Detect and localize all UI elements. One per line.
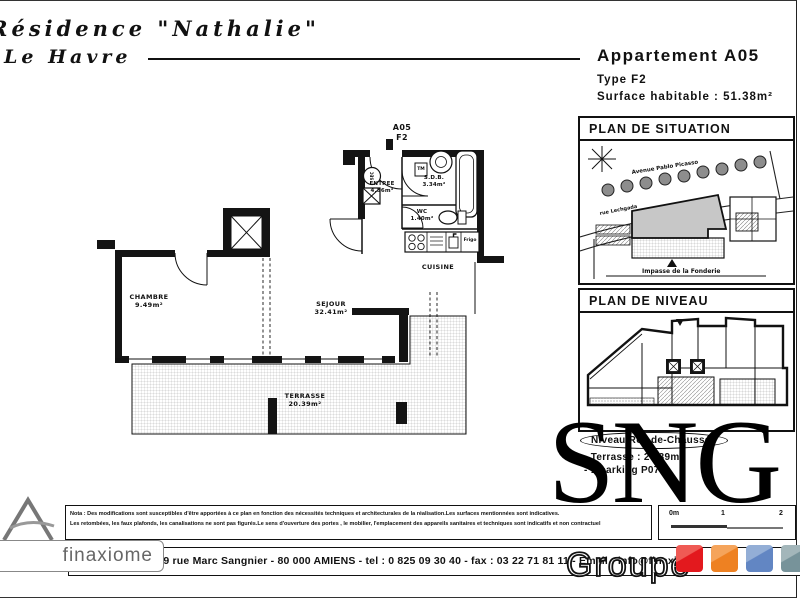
street-impasse-label: Impasse de la Fonderie [642, 268, 720, 275]
toilet [439, 211, 466, 224]
room-label-entree: ENTREE 4.56m² [360, 181, 404, 195]
terrasse-hatch [132, 316, 466, 434]
apartment-type: Type F2 [597, 74, 647, 86]
compass-icon [588, 146, 616, 172]
niveau-panel-title: PLAN DE NIVEAU [580, 290, 793, 313]
situation-map: Avenue Pablo Picasso rue Lechgada Impass… [580, 141, 793, 279]
unit-label-line1: A05 [384, 123, 420, 133]
bathtub [456, 151, 477, 217]
residence-title: Résidence "Nathalie" [0, 16, 320, 41]
sec-label: SEC [370, 172, 375, 181]
apartment-surface: Surface habitable : 51.38m² [597, 91, 773, 103]
brand-square-teal [781, 545, 800, 572]
washer-label: TM [415, 167, 427, 173]
washbasin [430, 151, 452, 173]
room-label-sejour: SEJOUR 32.41m² [300, 300, 362, 317]
apartment-title: Appartement A05 [597, 46, 760, 66]
city-title: Le Havre [4, 46, 131, 68]
brand-square-blue [746, 545, 773, 572]
room-label-chambre: CHAMBRE 9.49m² [122, 293, 176, 310]
brand-square-orange [711, 545, 738, 572]
unit-label-line2: F2 [384, 133, 420, 143]
situation-panel-title: PLAN DE SITUATION [580, 118, 793, 141]
room-label-cuisine: CUISINE [414, 263, 462, 271]
unit-label: A05 F2 [384, 123, 420, 144]
groupe-watermark: Groupe [566, 546, 691, 585]
scale-two: 2 [779, 510, 783, 517]
room-label-terrasse: TERRASSE 20.39m² [272, 392, 338, 409]
brand-square-red [676, 545, 703, 572]
title-underline [148, 58, 580, 60]
room-label-sdb: S.D.B. 3.34m² [416, 175, 452, 189]
fridge-label: Frigo [462, 238, 478, 244]
doors [175, 157, 428, 285]
sng-watermark: SNG [548, 402, 779, 522]
elevator-shaft [223, 208, 270, 257]
plan-sheet: { "page": { "residence": "Résidence \"Na… [0, 0, 800, 600]
situation-panel: PLAN DE SITUATION Avenue Pablo [578, 116, 795, 285]
room-label-wc: WC 1.40m² [404, 209, 440, 223]
finaxiome-logo-text: finaxiome [0, 540, 164, 572]
finaxiome-logo-icon [0, 496, 60, 542]
